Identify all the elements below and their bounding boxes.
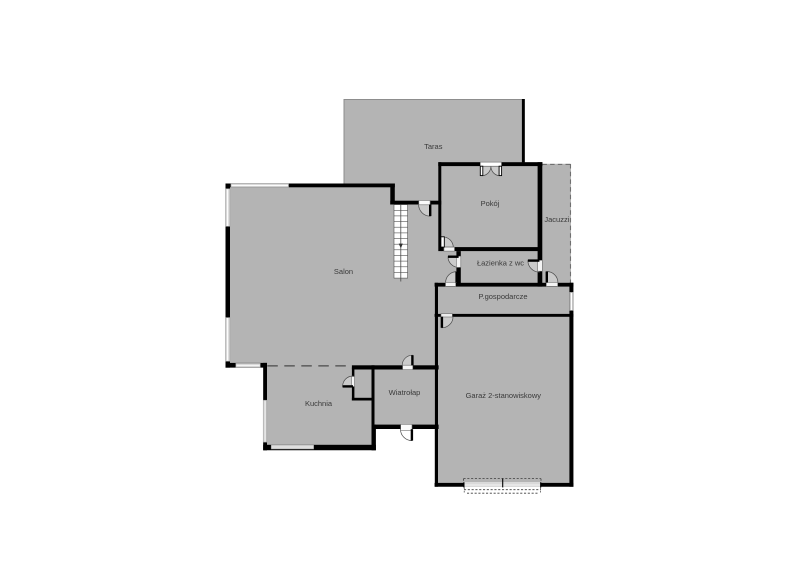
svg-text:Kuchnia: Kuchnia <box>305 399 333 408</box>
svg-text:Łazienka z wc: Łazienka z wc <box>477 259 524 268</box>
svg-text:Taras: Taras <box>424 142 443 151</box>
svg-text:Wiatrołap: Wiatrołap <box>389 388 421 397</box>
svg-text:Jacuzzi: Jacuzzi <box>544 215 569 224</box>
svg-text:Pokój: Pokój <box>481 199 500 208</box>
svg-text:Garaż 2-stanowiskowy: Garaż 2-stanowiskowy <box>466 391 542 400</box>
svg-text:P.gospodarcze: P.gospodarcze <box>478 292 527 301</box>
svg-text:Salon: Salon <box>334 267 353 276</box>
